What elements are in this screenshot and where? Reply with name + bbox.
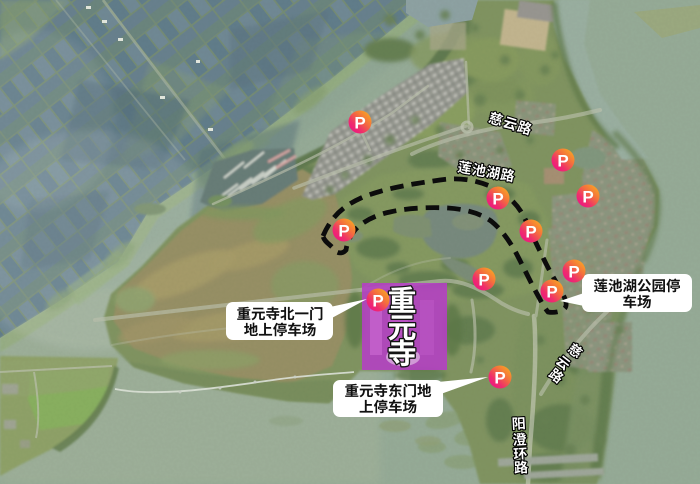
svg-text:P: P — [492, 190, 503, 209]
svg-text:P: P — [525, 223, 536, 242]
svg-text:P: P — [338, 222, 349, 241]
svg-text:P: P — [582, 188, 593, 207]
svg-text:P: P — [494, 369, 505, 388]
svg-text:P: P — [568, 263, 579, 282]
svg-text:P: P — [478, 271, 489, 290]
svg-text:P: P — [354, 114, 365, 133]
svg-text:P: P — [372, 292, 383, 311]
svg-text:P: P — [546, 283, 557, 302]
svg-text:P: P — [557, 152, 568, 171]
